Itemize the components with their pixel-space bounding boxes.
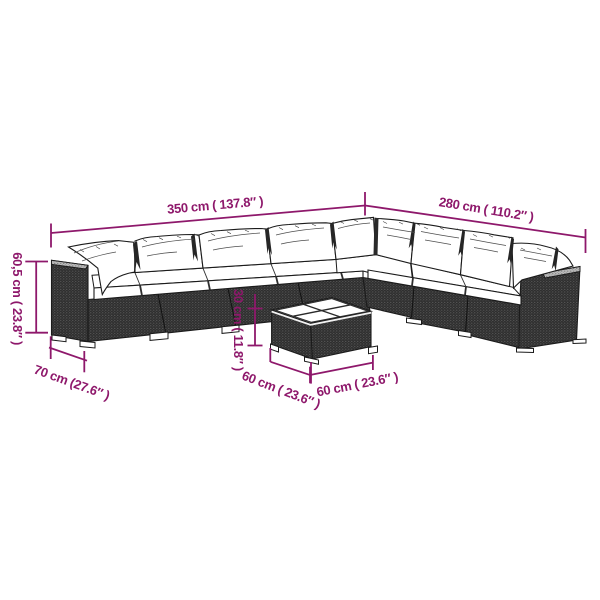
svg-text:280 cm ( 110.2″ ): 280 cm ( 110.2″ ): [438, 194, 535, 224]
svg-text:70 cm (27.6″ ): 70 cm (27.6″ ): [32, 362, 112, 403]
svg-text:350 cm ( 137.8″ ): 350 cm ( 137.8″ ): [166, 193, 263, 216]
svg-text:30 cm ( 11.8″ ): 30 cm ( 11.8″ ): [231, 289, 246, 371]
svg-text:60 cm ( 23.6″ ): 60 cm ( 23.6″ ): [315, 369, 399, 399]
svg-text:60,5 cm ( 23.8″ ): 60,5 cm ( 23.8″ ): [10, 252, 25, 345]
